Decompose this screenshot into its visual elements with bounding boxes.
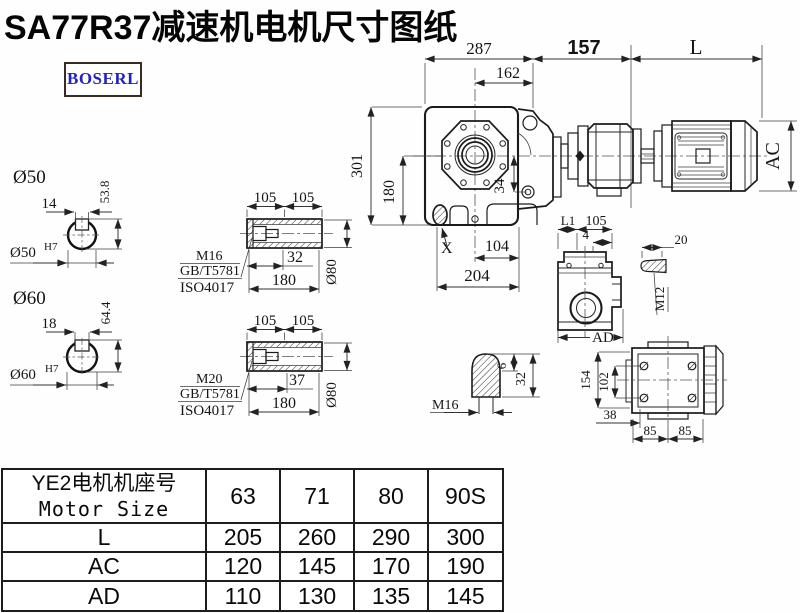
dim-L1: L1 — [561, 213, 575, 228]
label-std-gb2: GB/T5781 — [180, 387, 240, 402]
dim-180: 180 — [381, 180, 398, 204]
dim-301: 301 — [349, 154, 366, 178]
cell-L-63: 205 — [206, 523, 280, 552]
dim-dia80-top: Ø80 — [324, 259, 340, 285]
label-dia50: Ø50 — [13, 167, 46, 188]
dim-AD: AD — [592, 330, 614, 346]
label-key-m12: M12 — [652, 287, 667, 312]
motor-size-table: YE2电机机座号 Motor Size 63 71 80 90S L 205 2… — [1, 468, 504, 612]
label-plug-thread: M16 — [432, 398, 458, 413]
label-std-iso2: ISO4017 — [180, 403, 235, 419]
breather-plug-detail: M16 6 32 — [430, 354, 540, 414]
dim-85a: 85 — [644, 423, 657, 438]
gearbox-rear-view: 154 102 38 85 85 — [578, 336, 727, 443]
key-detail: 20 M12 — [641, 232, 688, 315]
dim-180-bottom: 180 — [272, 395, 296, 412]
dim-104: 104 — [485, 238, 509, 255]
dim-keyway14: 14 — [42, 196, 58, 212]
dim-105b: 105 — [292, 190, 315, 206]
dim-105a: 105 — [254, 190, 277, 206]
hollow-shaft-bottom: 105 105 M20 GB/T5781 ISO4017 37 180 Ø80 — [178, 313, 352, 419]
dim-37: 37 — [289, 372, 305, 389]
cell-AD-90s: 145 — [428, 581, 503, 611]
dim-53.8: 53.8 — [97, 181, 112, 204]
label-std-iso: ISO4017 — [180, 280, 235, 296]
row-label-AD: AD — [2, 581, 206, 611]
dim-162: 162 — [496, 65, 520, 82]
cell-AC-90s: 190 — [428, 552, 503, 581]
cell-AC-71: 145 — [280, 552, 354, 581]
header-en: Motor Size — [3, 497, 205, 522]
dim-dia80-bottom: Ø80 — [324, 382, 340, 408]
dim-287: 287 — [466, 39, 492, 58]
dim-20: 20 — [675, 232, 688, 247]
gearbox-side-view: L1 105 4 AD — [558, 213, 623, 346]
label-bore60: Ø60 — [10, 367, 36, 383]
dim-L: L — [690, 35, 703, 59]
col-71: 71 — [280, 469, 354, 523]
cell-AD-71: 130 — [280, 581, 354, 611]
dim-105d: 105 — [292, 313, 315, 329]
label-thread-m20: M20 — [196, 372, 222, 387]
dim-keyway18: 18 — [42, 316, 57, 332]
label-thread-m16: M16 — [196, 249, 222, 264]
dim-204: 204 — [464, 266, 490, 285]
dim-85b: 85 — [679, 423, 692, 438]
dim-4: 4 — [583, 227, 590, 242]
dim-154: 154 — [578, 370, 593, 390]
dim-180-top: 180 — [272, 272, 296, 289]
coupling-adapter — [553, 124, 654, 197]
dim-34: 34 — [492, 178, 508, 194]
hollow-shaft-top: 105 105 M16 GB/T5781 ISO4017 32 180 Ø80 — [178, 190, 352, 296]
dim-X: X — [441, 240, 453, 257]
row-label-AC: AC — [2, 552, 206, 581]
shaft-section-50: Ø50 14 53.8 Ø50 H7 — [10, 167, 122, 268]
dim-32-plug: 32 — [514, 372, 529, 386]
cell-AC-63: 120 — [206, 552, 280, 581]
table-row-AC: AC 120 145 170 190 — [2, 552, 503, 581]
cell-AD-63: 110 — [206, 581, 280, 611]
row-label-L: L — [2, 523, 206, 552]
dim-38: 38 — [604, 407, 617, 422]
shaft-section-60: Ø60 18 64.4 Ø60 H7 — [10, 288, 122, 390]
table-row-L: L 205 260 290 300 — [2, 523, 503, 552]
cell-L-90s: 300 — [428, 523, 503, 552]
dim-102: 102 — [596, 372, 611, 392]
dim-157: 157 — [567, 37, 600, 59]
table-header-motor-size: YE2电机机座号 Motor Size — [2, 469, 206, 523]
table-row-AD: AD 110 130 135 145 — [2, 581, 503, 611]
col-80: 80 — [354, 469, 428, 523]
col-63: 63 — [206, 469, 280, 523]
drawing-sheet: SA77R37减速机电机尺寸图纸 BOSERL — [0, 0, 800, 613]
dim-105c: 105 — [254, 313, 277, 329]
label-fit50: H7 — [44, 241, 58, 253]
label-bore50: Ø50 — [10, 245, 36, 261]
dim-AC: AC — [762, 142, 784, 170]
gearbox-front-view — [413, 68, 770, 262]
cell-AD-80: 135 — [354, 581, 428, 611]
main-view-dimensions: 287 162 157 L 301 180 34 X 104 204 — [349, 35, 797, 292]
col-90s: 90S — [428, 469, 503, 523]
header-cn: YE2电机机座号 — [3, 471, 205, 497]
dim-64.4: 64.4 — [98, 301, 113, 324]
label-dia60: Ø60 — [13, 288, 46, 309]
cell-L-71: 260 — [280, 523, 354, 552]
dim-32: 32 — [287, 249, 303, 266]
spec-table: YE2电机机座号 Motor Size 63 71 80 90S L 205 2… — [1, 468, 504, 612]
dim-6: 6 — [494, 362, 509, 369]
cell-AC-80: 170 — [354, 552, 428, 581]
label-std-gb: GB/T5781 — [180, 264, 240, 279]
label-fit60: H7 — [45, 363, 59, 375]
cell-L-80: 290 — [354, 523, 428, 552]
technical-drawing: 287 162 157 L 301 180 34 X 104 204 — [0, 0, 800, 466]
